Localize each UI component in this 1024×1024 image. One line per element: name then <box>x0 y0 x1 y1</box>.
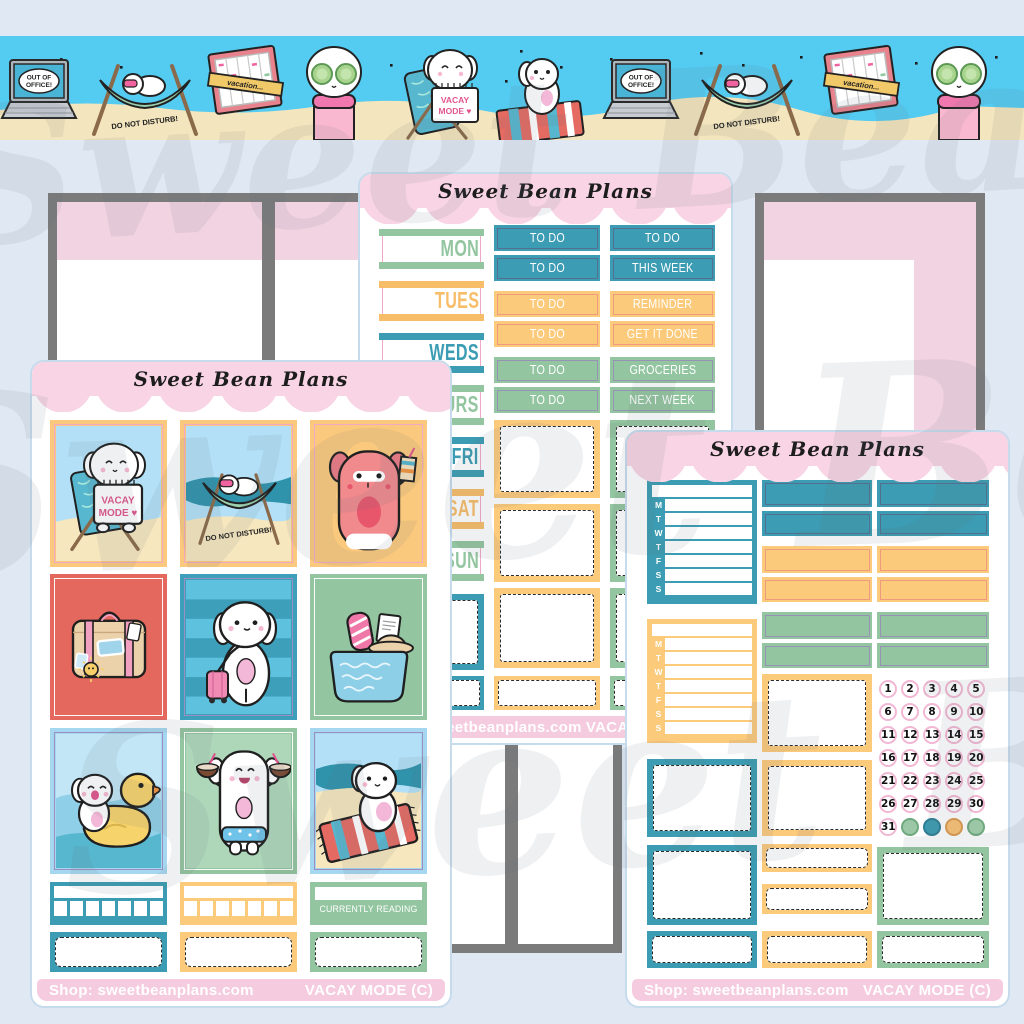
date-dot: 23 <box>923 772 941 790</box>
fullbox-vacay-chair: VACAY MODE ♥ <box>50 420 167 567</box>
shop-url: Shop: sweetbeanplans.com <box>644 982 849 999</box>
habit-tracker-teal <box>50 882 167 925</box>
blank-header-sticker <box>877 643 989 668</box>
date-dot: 26 <box>879 795 897 813</box>
dashed-box-sticker <box>647 759 757 837</box>
blank-header-sticker <box>877 511 989 536</box>
day-letter: S <box>652 722 665 734</box>
sheet-title: Sweet Bean Plans <box>360 179 731 203</box>
dashed-box-sticker <box>647 845 757 925</box>
todo-header-sticker: TO DO <box>494 357 600 383</box>
sticker-sheet-right: Sweet Bean Plans M T W T F S S M T W T F… <box>625 430 1010 1008</box>
dashed-box-sticker <box>494 504 600 582</box>
blank-header-sticker <box>877 546 989 573</box>
blank-header-sticker <box>762 612 872 639</box>
vacay-sign-line2: MODE ♥ <box>99 508 138 519</box>
blank-header-sticker <box>877 577 989 602</box>
fullbox-suitcase <box>50 574 167 720</box>
reading-title-bar <box>315 887 422 900</box>
date-dot: 28 <box>923 795 941 813</box>
product-image: OUT OF OFFICE! DO NOT DISTURB! <box>0 0 1024 1024</box>
fullbox-beach-towel <box>310 728 427 874</box>
fullbox-sunburn <box>310 420 427 567</box>
tracker-column: M T W T F S S M T W T F S S <box>647 432 757 1006</box>
blank-header-sticker <box>762 511 872 536</box>
shop-url: Shop: sweetbeanplans.com <box>49 982 254 999</box>
day-label: MON <box>440 235 479 262</box>
day-letter: S <box>652 583 665 595</box>
date-dot: 29 <box>945 795 963 813</box>
dashed-bar-sticker <box>647 931 757 968</box>
date-dot: 9 <box>945 703 963 721</box>
label-header-sticker: TO DO <box>610 225 715 251</box>
sheet-footer: Shop: sweetbeanplans.com VACAY MODE (C) <box>37 979 445 1001</box>
tracker-title-bar <box>184 886 293 898</box>
dashed-bar-sticker <box>877 931 989 968</box>
dashed-box-sticker <box>762 674 872 752</box>
date-dot: 1 <box>879 680 897 698</box>
date-dot: 14 <box>945 726 963 744</box>
tracker-title-bar <box>652 624 752 636</box>
todo-header-sticker: TO DO <box>494 387 600 413</box>
dashed-bar-sticker <box>50 932 167 972</box>
date-dot: 7 <box>901 703 919 721</box>
date-dot: 24 <box>945 772 963 790</box>
day-label: FRI <box>452 443 479 470</box>
label-header-sticker: NEXT WEEK <box>610 387 715 413</box>
blank-header-sticker <box>877 480 989 507</box>
day-letter: S <box>652 708 665 720</box>
tracker-title-bar <box>652 485 752 497</box>
todo-header-sticker: TO DO <box>494 321 600 347</box>
date-dot: 4 <box>945 680 963 698</box>
date-dot: 21 <box>879 772 897 790</box>
label-header-sticker: REMINDER <box>610 291 715 317</box>
date-dot: 3 <box>923 680 941 698</box>
date-dot: 30 <box>967 795 985 813</box>
color-dot-yellow <box>945 818 963 836</box>
sheet-footer: Shop: sweetbeanplans.com VACAY MODE (C) <box>632 979 1003 1001</box>
sheet-header: Sweet Bean Plans <box>32 362 450 414</box>
sheet-title: Sweet Bean Plans <box>627 437 1008 461</box>
day-letter: M <box>652 638 665 650</box>
blank-header-sticker <box>877 612 989 639</box>
dashed-bar-sticker <box>310 932 427 972</box>
date-dot: 12 <box>901 726 919 744</box>
kit-name: VACAY MODE (C) <box>305 982 433 999</box>
header-bars-column <box>762 432 872 1006</box>
date-dot: 8 <box>923 703 941 721</box>
date-cover-mon: MON <box>379 229 484 269</box>
todo-header-sticker: TO DO <box>494 225 600 251</box>
weekly-tracker-teal: M T W T F S S <box>647 480 757 604</box>
date-dots-column: 12345 678910 1112131415 1617181920 21222… <box>877 432 989 1006</box>
todo-header-sticker: TO DO <box>494 255 600 281</box>
day-letter: T <box>652 541 665 553</box>
day-letter: T <box>652 680 665 692</box>
habit-tracker-yellow <box>180 882 297 925</box>
blank-header-sticker <box>762 643 872 668</box>
duck-float-illustration <box>56 734 161 868</box>
sunburn-dog-illustration <box>316 426 421 561</box>
color-dot-green <box>967 818 985 836</box>
label-header-sticker: GET IT DONE <box>610 321 715 347</box>
washi-tape-banner: OUT OF OFFICE! DO NOT DISTURB! <box>0 36 1024 140</box>
rolling-luggage-illustration <box>186 580 291 714</box>
beach-towel-illustration <box>316 734 421 868</box>
date-dot: 22 <box>901 772 919 790</box>
date-dot: 19 <box>945 749 963 767</box>
fullbox-coconut-drinks <box>180 728 297 874</box>
dashed-box-sticker <box>494 420 600 498</box>
fullbox-duck-float <box>50 728 167 874</box>
fullbox-hammock: DO NOT DISTURB! <box>180 420 297 567</box>
todo-header-sticker: TO DO <box>494 291 600 317</box>
blank-header-sticker <box>762 480 872 507</box>
label-header-sticker: GROCERIES <box>610 357 715 383</box>
blank-header-sticker <box>762 577 872 602</box>
fullbox-rolling-luggage <box>180 574 297 720</box>
day-letter: M <box>652 499 665 511</box>
vacay-sign-line1: VACAY <box>101 495 135 506</box>
tracker-title-bar <box>54 886 163 898</box>
day-letter: T <box>652 513 665 525</box>
kit-name: VACAY MODE (C) <box>863 982 991 999</box>
date-dot: 31 <box>879 818 897 836</box>
dashed-bar-sticker <box>762 844 872 872</box>
blank-header-sticker <box>762 546 872 573</box>
date-dot: 25 <box>967 772 985 790</box>
day-letter: W <box>652 527 665 539</box>
date-dot: 15 <box>967 726 985 744</box>
vacay-chair-illustration: VACAY MODE ♥ <box>56 426 161 561</box>
date-dot: 16 <box>879 749 897 767</box>
sheet-header: Sweet Bean Plans <box>360 174 731 226</box>
day-letter: F <box>652 694 665 706</box>
date-dot: 5 <box>967 680 985 698</box>
day-label: TUES <box>435 287 479 314</box>
day-letter: S <box>652 569 665 581</box>
dashed-bar-sticker <box>762 931 872 968</box>
color-dot-green <box>901 818 919 836</box>
date-dot: 11 <box>879 726 897 744</box>
dashed-bar-sticker <box>494 676 600 710</box>
suitcase-illustration <box>56 580 161 714</box>
hammock-illustration: DO NOT DISTURB! <box>186 426 291 561</box>
day-letter: W <box>652 666 665 678</box>
date-dot-grid: 12345 678910 1112131415 1617181920 21222… <box>879 680 987 836</box>
label-header-sticker: THIS WEEK <box>610 255 715 281</box>
date-dot: 27 <box>901 795 919 813</box>
dashed-box-sticker <box>494 588 600 668</box>
date-dot: 20 <box>967 749 985 767</box>
color-dot-teal <box>923 818 941 836</box>
date-dot: 18 <box>923 749 941 767</box>
sheet-header: Sweet Bean Plans <box>627 432 1008 484</box>
coconut-drinks-illustration <box>186 734 291 868</box>
date-dot: 2 <box>901 680 919 698</box>
date-dot: 10 <box>967 703 985 721</box>
beach-bag-illustration <box>316 580 421 714</box>
reading-label: CURRENTLY READING <box>319 904 417 915</box>
dashed-bar-sticker <box>762 884 872 914</box>
sheet-title: Sweet Bean Plans <box>32 367 450 391</box>
day-letter: F <box>652 555 665 567</box>
date-cover-tues: TUES <box>379 281 484 321</box>
date-dot: 17 <box>901 749 919 767</box>
dashed-box-sticker <box>762 760 872 836</box>
dashed-bar-sticker <box>180 932 297 972</box>
date-dot: 13 <box>923 726 941 744</box>
fullbox-beach-bag <box>310 574 427 720</box>
weekly-tracker-yellow: M T W T F S S <box>647 619 757 743</box>
sticker-sheet-left: Sweet Bean Plans VACAY MODE ♥ <box>30 360 452 1008</box>
date-dot: 6 <box>879 703 897 721</box>
dashed-box-sticker <box>877 847 989 925</box>
todo-column: TO DO TO DO TO DO TO DO TO DO TO DO <box>494 174 600 743</box>
day-letter: T <box>652 652 665 664</box>
currently-reading-sticker: CURRENTLY READING <box>310 882 427 925</box>
